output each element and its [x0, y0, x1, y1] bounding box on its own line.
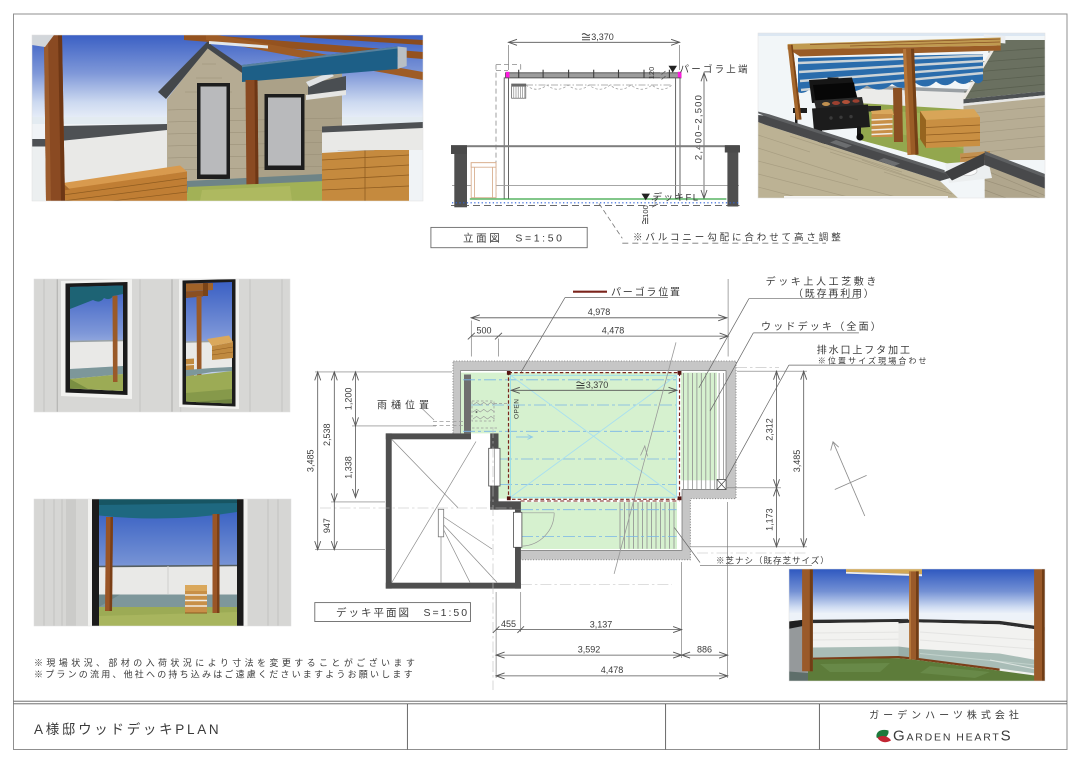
svg-text:※バルコニー勾配に合わせて高さ調整: ※バルコニー勾配に合わせて高さ調整: [633, 231, 844, 243]
svg-text:500: 500: [476, 326, 491, 336]
svg-text:雨樋位置: 雨樋位置: [377, 399, 433, 412]
svg-text:3,485: 3,485: [306, 450, 316, 473]
svg-text:4,478: 4,478: [601, 665, 624, 675]
svg-text:（既存再利用）: （既存再利用）: [793, 287, 876, 300]
svg-text:2,538: 2,538: [322, 423, 332, 446]
svg-text:※現場状況、部材の入荷状況により寸法を変更することがございま: ※現場状況、部材の入荷状況により寸法を変更することがございます: [34, 657, 418, 668]
svg-text:3,485: 3,485: [792, 450, 802, 473]
svg-text:A様邸ウッドデッキPLAN: A様邸ウッドデッキPLAN: [34, 721, 221, 737]
svg-text:4,978: 4,978: [588, 307, 611, 317]
svg-text:※プランの流用、他社への持ち込みはご遠慮くださいますようお願: ※プランの流用、他社への持ち込みはご遠慮くださいますようお願いします: [34, 668, 415, 679]
svg-text:4,478: 4,478: [602, 326, 625, 336]
svg-text:ウッドデッキ（全面）: ウッドデッキ（全面）: [761, 320, 883, 333]
svg-text:デッキ上人工芝敷き: デッキ上人工芝敷き: [766, 275, 879, 288]
svg-text:120: 120: [647, 67, 656, 80]
svg-text:1,338: 1,338: [344, 456, 354, 479]
svg-text:パーゴラ上端: パーゴラ上端: [680, 64, 750, 76]
svg-text:2,400~2,500: 2,400~2,500: [694, 94, 705, 160]
svg-text:3,592: 3,592: [578, 644, 601, 654]
svg-text:1,173: 1,173: [765, 508, 775, 531]
svg-text:デッキ平面図 S=1:50: デッキ平面図 S=1:50: [336, 606, 469, 619]
svg-text:3,370: 3,370: [591, 32, 614, 42]
svg-text:100: 100: [641, 205, 650, 218]
svg-text:2,312: 2,312: [765, 418, 775, 441]
svg-text:1,200: 1,200: [344, 388, 354, 411]
svg-text:デッキFL: デッキFL: [653, 192, 700, 204]
svg-text:ガーデンハーツ株式会社: ガーデンハーツ株式会社: [869, 709, 1023, 722]
svg-text:3,370: 3,370: [586, 380, 609, 390]
svg-text:立面図 S=1:50: 立面図 S=1:50: [463, 232, 565, 245]
svg-text:排水口上フタ加工: 排水口上フタ加工: [817, 343, 912, 356]
svg-text:※芝ナシ（既存芝サイズ）: ※芝ナシ（既存芝サイズ）: [716, 555, 830, 565]
svg-text:OPEN: OPEN: [514, 399, 521, 419]
svg-text:パーゴラ位置: パーゴラ位置: [611, 286, 682, 299]
svg-text:GARDENHEARTS: GARDENHEARTS: [893, 728, 1012, 745]
svg-text:※位置サイズ現場合わせ: ※位置サイズ現場合わせ: [818, 355, 929, 365]
svg-text:455: 455: [501, 619, 516, 629]
svg-text:886: 886: [697, 644, 712, 654]
svg-text:3,137: 3,137: [590, 619, 613, 629]
svg-text:947: 947: [322, 518, 332, 533]
